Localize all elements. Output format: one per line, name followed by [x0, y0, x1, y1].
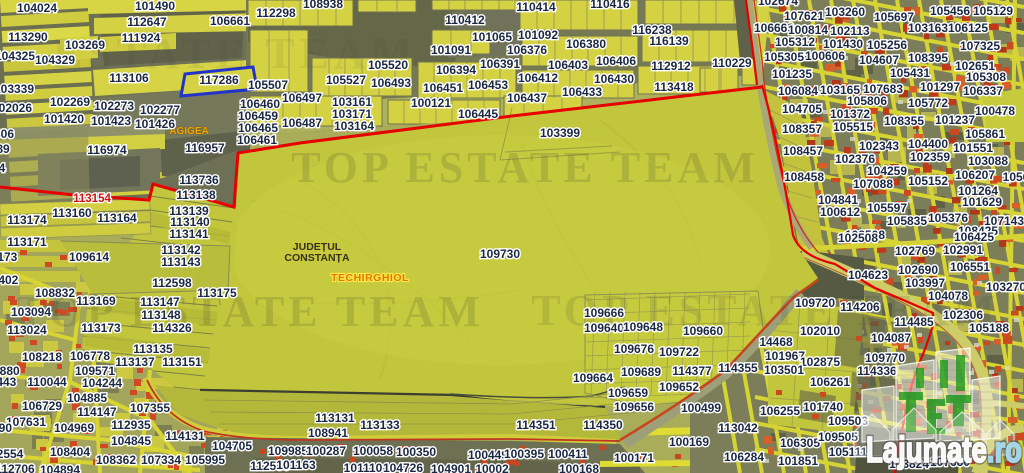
- svg-text:109648: 109648: [623, 320, 663, 334]
- svg-text:104244: 104244: [82, 376, 122, 390]
- svg-text:114206: 114206: [840, 300, 880, 314]
- svg-text:100395: 100395: [504, 447, 544, 461]
- svg-text:117286: 117286: [199, 73, 239, 87]
- svg-text:113171: 113171: [7, 235, 47, 249]
- svg-text:106493: 106493: [371, 76, 411, 90]
- svg-text:108457: 108457: [783, 144, 823, 158]
- svg-text:101092: 101092: [518, 28, 558, 42]
- svg-text:106453: 106453: [468, 78, 508, 92]
- svg-text:112706: 112706: [0, 462, 35, 473]
- svg-text:106261: 106261: [810, 375, 850, 389]
- svg-text:AGIGEA: AGIGEA: [169, 126, 208, 137]
- svg-text:103260: 103260: [825, 5, 865, 19]
- svg-text:2554: 2554: [0, 447, 24, 461]
- svg-text:105456: 105456: [930, 4, 970, 18]
- svg-text:104885: 104885: [67, 391, 107, 405]
- svg-text:102674: 102674: [758, 0, 798, 8]
- svg-text:100121: 100121: [411, 96, 451, 110]
- svg-text:114485: 114485: [894, 315, 934, 329]
- svg-text:103163: 103163: [908, 21, 948, 35]
- svg-text:106084: 106084: [778, 84, 818, 98]
- svg-text:Lajumate.ro: Lajumate.ro: [866, 429, 1022, 470]
- svg-text:113154: 113154: [73, 193, 111, 205]
- svg-text:106406: 106406: [596, 54, 636, 68]
- svg-text:102273: 102273: [94, 99, 134, 113]
- svg-text:106661: 106661: [210, 14, 250, 28]
- svg-text:105431: 105431: [890, 66, 930, 80]
- svg-text:105305: 105305: [764, 50, 804, 64]
- svg-text:105129: 105129: [973, 4, 1013, 18]
- svg-text:113141: 113141: [169, 227, 209, 241]
- svg-text:103501: 103501: [764, 363, 804, 377]
- svg-text:111924: 111924: [122, 31, 161, 45]
- svg-text:113418: 113418: [654, 80, 694, 94]
- svg-text:106445: 106445: [458, 107, 498, 121]
- svg-text:105376: 105376: [928, 211, 968, 225]
- svg-text:106425: 106425: [954, 230, 994, 244]
- svg-text:9173: 9173: [0, 250, 18, 264]
- svg-text:106391: 106391: [480, 57, 520, 71]
- svg-text:105520: 105520: [368, 58, 408, 72]
- svg-text:106451: 106451: [423, 81, 463, 95]
- svg-text:105188: 105188: [969, 321, 1009, 335]
- svg-text:114355: 114355: [718, 361, 758, 375]
- svg-text:104705: 104705: [212, 439, 252, 453]
- svg-text:109770: 109770: [865, 351, 905, 365]
- svg-text:106551: 106551: [950, 260, 990, 274]
- svg-text:105861: 105861: [965, 127, 1005, 141]
- svg-text:101297: 101297: [920, 80, 960, 94]
- svg-text:104705: 104705: [782, 102, 822, 116]
- svg-text:103269: 103269: [65, 38, 105, 52]
- svg-text:104901: 104901: [431, 462, 471, 473]
- svg-text:102991: 102991: [943, 243, 983, 257]
- svg-text:110044: 110044: [27, 375, 67, 389]
- svg-text:113169: 113169: [76, 294, 116, 308]
- svg-text:103399: 103399: [540, 126, 580, 140]
- svg-text:9443: 9443: [0, 375, 17, 389]
- svg-text:106207: 106207: [955, 168, 995, 182]
- svg-text:106255: 106255: [760, 404, 800, 418]
- svg-text:104726: 104726: [383, 461, 423, 473]
- svg-text:107334: 107334: [141, 453, 181, 467]
- svg-text:106380: 106380: [566, 37, 606, 51]
- svg-text:106403: 106403: [548, 58, 588, 72]
- svg-text:109720: 109720: [795, 296, 835, 310]
- svg-text:100606: 100606: [805, 49, 845, 63]
- svg-text:106394: 106394: [436, 63, 476, 77]
- svg-text:104845: 104845: [111, 434, 151, 448]
- svg-text:306: 306: [0, 127, 14, 141]
- svg-text:113175: 113175: [197, 286, 237, 300]
- svg-text:109722: 109722: [659, 345, 699, 359]
- svg-text:109614: 109614: [69, 250, 109, 264]
- svg-text:114377: 114377: [672, 364, 712, 378]
- svg-text:110229: 110229: [712, 56, 752, 70]
- svg-text:105256: 105256: [867, 38, 907, 52]
- svg-text:113131: 113131: [315, 411, 355, 425]
- svg-text:104259: 104259: [867, 164, 907, 178]
- svg-text:101420: 101420: [44, 112, 84, 126]
- svg-text:101423: 101423: [91, 114, 131, 128]
- svg-text:113160: 113160: [52, 206, 92, 220]
- svg-text:103997: 103997: [905, 276, 945, 290]
- svg-text:108832: 108832: [35, 286, 75, 300]
- svg-text:112598: 112598: [152, 276, 192, 290]
- svg-text:113290: 113290: [8, 30, 48, 44]
- svg-text:103164: 103164: [334, 119, 374, 133]
- svg-text:TECHIRGHIOL: TECHIRGHIOL: [331, 272, 409, 284]
- svg-text:100168: 100168: [559, 462, 599, 473]
- svg-text:105308: 105308: [966, 70, 1006, 84]
- svg-text:107325: 107325: [960, 39, 1000, 53]
- svg-text:101163: 101163: [276, 458, 316, 472]
- svg-text:106487: 106487: [282, 116, 322, 130]
- svg-text:105835: 105835: [887, 214, 927, 228]
- svg-text:113147: 113147: [140, 295, 180, 309]
- svg-text:100350: 100350: [396, 445, 436, 459]
- svg-text:102113: 102113: [830, 24, 870, 38]
- svg-text:108941: 108941: [308, 426, 348, 440]
- svg-text:101110: 101110: [344, 461, 383, 473]
- svg-text:112298: 112298: [256, 6, 296, 20]
- svg-text:113164: 113164: [97, 211, 137, 225]
- svg-text:112935: 112935: [111, 418, 151, 432]
- svg-text:113137: 113137: [115, 355, 155, 369]
- svg-text:102277: 102277: [140, 103, 180, 117]
- svg-text:104024: 104024: [17, 1, 57, 15]
- svg-text:102690: 102690: [898, 263, 938, 277]
- svg-text:106284: 106284: [724, 450, 764, 464]
- svg-text:109664: 109664: [573, 371, 613, 385]
- svg-text:106376: 106376: [507, 43, 547, 57]
- svg-text:108357: 108357: [782, 122, 822, 136]
- svg-text:106430: 106430: [594, 72, 634, 86]
- svg-text:103339: 103339: [0, 82, 34, 96]
- svg-text:106433: 106433: [562, 85, 602, 99]
- svg-text:CONSTANȚA: CONSTANȚA: [284, 252, 350, 264]
- svg-text:116974: 116974: [87, 143, 127, 157]
- svg-text:102875: 102875: [800, 355, 840, 369]
- svg-text:101851: 101851: [778, 454, 818, 468]
- svg-text:109640: 109640: [584, 321, 624, 335]
- svg-text:114131: 114131: [165, 429, 205, 443]
- svg-text:101551: 101551: [953, 141, 993, 155]
- svg-text:101629: 101629: [962, 195, 1002, 209]
- svg-text:101237: 101237: [935, 113, 975, 127]
- svg-text:109659: 109659: [608, 386, 648, 400]
- svg-text:100169: 100169: [669, 435, 709, 449]
- svg-text:113024: 113024: [7, 323, 47, 337]
- svg-text:101065: 101065: [472, 30, 512, 44]
- svg-text:113106: 113106: [109, 71, 149, 85]
- svg-text:105312: 105312: [775, 35, 815, 49]
- svg-text:100171: 100171: [614, 451, 654, 465]
- svg-text:104325: 104325: [0, 49, 35, 63]
- svg-text:104607: 104607: [859, 53, 899, 67]
- svg-text:116139: 116139: [649, 34, 689, 48]
- svg-text:105806: 105806: [847, 94, 887, 108]
- svg-text:113173: 113173: [81, 321, 121, 335]
- svg-text:108355: 108355: [884, 114, 924, 128]
- svg-text:102306: 102306: [943, 308, 983, 322]
- svg-text:106437: 106437: [507, 91, 547, 105]
- svg-text:114326: 114326: [152, 321, 192, 335]
- svg-text:14468: 14468: [759, 335, 793, 349]
- svg-text:101490: 101490: [135, 0, 175, 13]
- svg-text:110416: 110416: [590, 0, 630, 11]
- svg-text:108395: 108395: [908, 51, 948, 65]
- svg-text:109676: 109676: [614, 342, 654, 356]
- svg-text:100499: 100499: [681, 401, 721, 415]
- svg-text:101740: 101740: [803, 400, 843, 414]
- svg-text:112647: 112647: [127, 15, 167, 29]
- svg-text:107088: 107088: [853, 177, 893, 191]
- svg-text:104623: 104623: [848, 268, 888, 282]
- svg-text:ESTATE TEAM: ESTATE TEAM: [53, 29, 417, 78]
- svg-text:110412: 110412: [445, 13, 485, 27]
- svg-text:112912: 112912: [651, 59, 691, 73]
- svg-text:100449: 100449: [468, 448, 508, 462]
- svg-text:105597: 105597: [867, 201, 907, 215]
- svg-text:113148: 113148: [141, 308, 181, 322]
- svg-text:106125: 106125: [948, 21, 988, 35]
- svg-text:113143: 113143: [161, 255, 201, 269]
- svg-text:104969: 104969: [54, 421, 94, 435]
- svg-text:106729: 106729: [22, 399, 62, 413]
- svg-text:102359: 102359: [910, 150, 950, 164]
- svg-text:100058: 100058: [353, 444, 393, 458]
- svg-text:8402: 8402: [0, 273, 19, 287]
- svg-text:109656: 109656: [614, 400, 654, 414]
- svg-text:104400: 104400: [908, 137, 948, 151]
- svg-text:104329: 104329: [35, 53, 75, 67]
- svg-text:101091: 101091: [431, 43, 471, 57]
- svg-text:109730: 109730: [480, 247, 520, 261]
- svg-text:106461: 106461: [237, 133, 277, 147]
- svg-text:113736: 113736: [179, 173, 219, 187]
- svg-text:106412: 106412: [518, 71, 558, 85]
- svg-text:103270: 103270: [986, 280, 1024, 294]
- svg-text:108404: 108404: [50, 445, 90, 459]
- svg-text:102343: 102343: [859, 139, 899, 153]
- svg-text:107355: 107355: [130, 401, 170, 415]
- svg-text:4: 4: [0, 161, 6, 175]
- svg-text:101235: 101235: [772, 67, 812, 81]
- svg-text:105995: 105995: [185, 453, 225, 467]
- svg-text:106497: 106497: [282, 91, 322, 105]
- svg-text:102026: 102026: [0, 101, 32, 115]
- svg-text:109505: 109505: [818, 430, 858, 444]
- svg-text:113135: 113135: [133, 342, 173, 356]
- svg-text:106305: 106305: [780, 436, 820, 450]
- svg-text:103088: 103088: [968, 154, 1008, 168]
- svg-text:105772: 105772: [908, 96, 948, 110]
- svg-text:102508: 102508: [838, 231, 878, 245]
- svg-text:100287: 100287: [306, 444, 346, 458]
- svg-text:109660: 109660: [683, 324, 723, 338]
- svg-text:114336: 114336: [857, 364, 897, 378]
- svg-text:107631: 107631: [6, 415, 46, 429]
- svg-text:109666: 109666: [584, 306, 624, 320]
- svg-text:10002: 10002: [475, 462, 509, 473]
- svg-text:89: 89: [0, 142, 10, 156]
- svg-text:110414: 110414: [516, 0, 556, 14]
- svg-text:101426: 101426: [135, 117, 175, 131]
- svg-text:106337: 106337: [963, 84, 1003, 98]
- svg-text:102010: 102010: [800, 324, 840, 338]
- svg-text:109985: 109985: [268, 444, 308, 458]
- svg-text:113138: 113138: [176, 188, 216, 202]
- svg-text:106778: 106778: [70, 349, 110, 363]
- svg-text:105507: 105507: [248, 78, 288, 92]
- svg-text:590: 590: [0, 421, 12, 435]
- svg-text:108362: 108362: [96, 453, 136, 467]
- svg-text:108218: 108218: [22, 350, 62, 364]
- svg-text:113174: 113174: [7, 213, 47, 227]
- svg-text:108458: 108458: [784, 170, 824, 184]
- svg-text:113133: 113133: [360, 418, 400, 432]
- svg-text:102769: 102769: [895, 244, 935, 258]
- svg-text:104894: 104894: [40, 463, 80, 473]
- svg-text:100478: 100478: [975, 104, 1015, 118]
- svg-text:114351: 114351: [516, 418, 556, 432]
- svg-text:104087: 104087: [871, 331, 911, 345]
- svg-text:105152: 105152: [908, 174, 948, 188]
- svg-text:114147: 114147: [77, 405, 117, 419]
- svg-text:101372: 101372: [830, 107, 870, 121]
- svg-text:104078: 104078: [928, 289, 968, 303]
- svg-text:105515: 105515: [833, 120, 873, 134]
- svg-text:103094: 103094: [11, 305, 51, 319]
- svg-text:TOP ESTATE TEAM: TOP ESTATE TEAM: [291, 143, 759, 192]
- svg-text:100612: 100612: [820, 205, 860, 219]
- svg-text:116957: 116957: [185, 141, 225, 155]
- svg-text:109689: 109689: [621, 365, 661, 379]
- svg-text:100411: 100411: [548, 447, 588, 461]
- svg-text:105527: 105527: [326, 73, 366, 87]
- svg-text:113151: 113151: [162, 355, 202, 369]
- svg-text:102269: 102269: [50, 95, 90, 109]
- svg-text:109652: 109652: [659, 380, 699, 394]
- svg-text:108938: 108938: [303, 0, 343, 11]
- svg-text:1056: 1056: [1003, 170, 1024, 184]
- svg-text:114350: 114350: [583, 418, 623, 432]
- svg-text:113042: 113042: [718, 421, 758, 435]
